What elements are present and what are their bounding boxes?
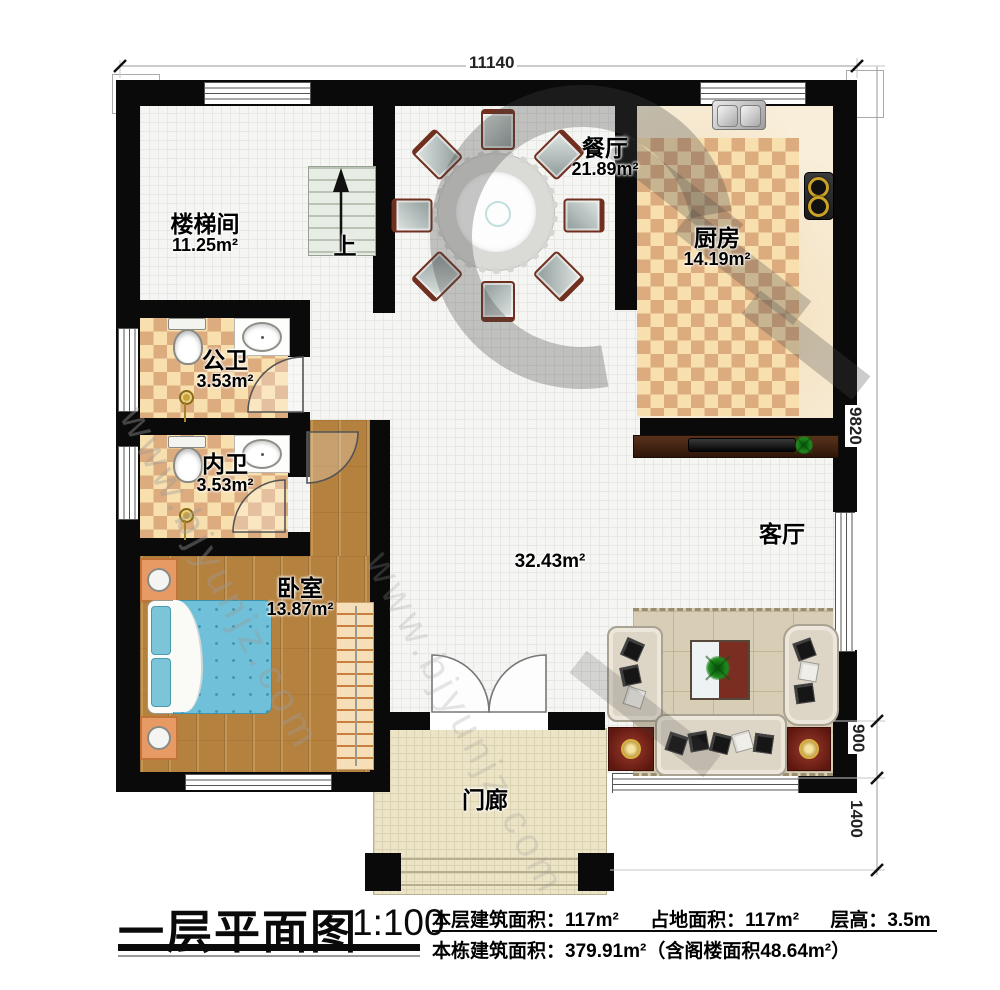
storey-height-text: 层高：3.5m bbox=[830, 910, 930, 931]
window-bedroom-bottom bbox=[185, 774, 332, 790]
stair-up-text: 上 bbox=[325, 234, 365, 258]
info-separator-line bbox=[432, 930, 937, 932]
window-living-right bbox=[835, 512, 855, 652]
bed-pillow bbox=[151, 658, 171, 707]
living-name-label: 客厅 bbox=[742, 522, 822, 546]
window-inner-bath-left bbox=[118, 446, 138, 520]
cushion bbox=[797, 660, 819, 682]
dimension-right-total: 9820 bbox=[845, 405, 865, 447]
living-area-label: 32.43m² bbox=[495, 552, 605, 572]
land-area-text: 占地面积：117m² bbox=[650, 910, 799, 931]
window-living-bottom bbox=[612, 773, 799, 793]
kitchen-name: 厨房 bbox=[672, 226, 762, 250]
sink-bowl-right bbox=[740, 105, 761, 127]
cushion bbox=[665, 732, 689, 756]
dining-chair bbox=[392, 199, 433, 233]
plan-scale: 1:100 bbox=[352, 902, 445, 944]
table-lamp bbox=[147, 726, 171, 750]
wardrobe bbox=[336, 602, 374, 770]
dining-chair bbox=[564, 199, 605, 233]
bedroom-area: 13.87m² bbox=[252, 600, 348, 619]
plan-title: 一层平面图 bbox=[118, 896, 358, 962]
tv bbox=[688, 438, 796, 452]
sink-bowl-left bbox=[717, 105, 738, 127]
dining-table bbox=[438, 154, 554, 270]
porch-step-line bbox=[398, 884, 580, 886]
kitchen-stove bbox=[804, 172, 834, 220]
armchair-left bbox=[607, 626, 663, 722]
living-name: 客厅 bbox=[742, 522, 822, 546]
inner-bath-name: 内卫 bbox=[180, 452, 270, 476]
public-bath-area: 3.53m² bbox=[180, 372, 270, 391]
cushion bbox=[731, 730, 755, 754]
table-lamp bbox=[147, 568, 171, 592]
wall-bath-right-a bbox=[288, 300, 310, 357]
kitchen-sink bbox=[712, 100, 766, 130]
floor-lamp bbox=[799, 739, 819, 759]
porch-step-line bbox=[398, 871, 580, 873]
dimension-right-900: 900 bbox=[848, 722, 868, 754]
wall-entry-right bbox=[548, 712, 605, 730]
window-stairwell-top bbox=[204, 82, 311, 104]
cushion bbox=[623, 686, 647, 710]
sofa-main bbox=[655, 714, 787, 776]
area-info-line1: 本层建筑面积：117m² 占地面积：117m² 层高：3.5m bbox=[432, 905, 957, 932]
coffee-table-plant bbox=[706, 656, 730, 680]
stove-burner bbox=[808, 177, 829, 198]
bedroom-corridor-floor bbox=[310, 420, 370, 556]
dining-chair bbox=[481, 109, 515, 150]
inner-bath-label: 内卫 3.53m² bbox=[180, 452, 270, 495]
title-underline-thick bbox=[118, 944, 420, 951]
porch-name: 门廊 bbox=[440, 788, 530, 812]
cushion bbox=[794, 683, 815, 704]
stove-burner bbox=[808, 196, 829, 217]
stair-up-label: 上 bbox=[325, 234, 365, 258]
area-info-line2: 本栋建筑面积：379.91m²（含阁楼面积48.64m²） bbox=[432, 936, 876, 963]
dimension-top-width: 11140 bbox=[466, 53, 517, 73]
cushion bbox=[687, 730, 709, 752]
cushion bbox=[753, 733, 774, 754]
nightstand-top bbox=[140, 558, 178, 602]
stairwell-area: 11.25m² bbox=[150, 236, 260, 255]
public-bath-name: 公卫 bbox=[180, 348, 270, 372]
wall-entry-left bbox=[385, 712, 430, 730]
kitchen-floor bbox=[637, 138, 799, 416]
public-bath-label: 公卫 3.53m² bbox=[180, 348, 270, 391]
cushion bbox=[619, 664, 642, 687]
window-public-bath-left bbox=[118, 328, 138, 412]
porch-column-right bbox=[578, 853, 614, 891]
public-bath-floor-drain bbox=[179, 390, 194, 405]
floor-area-text: 本层建筑面积：117m² bbox=[432, 910, 619, 931]
entry-door-opening bbox=[430, 712, 548, 730]
side-mat-left bbox=[608, 727, 654, 771]
side-mat-right bbox=[787, 727, 831, 771]
dining-table-center bbox=[485, 201, 511, 227]
porch-step-line bbox=[398, 858, 580, 860]
inner-bath-floor-drain bbox=[179, 508, 194, 523]
dining-name: 餐厅 bbox=[560, 136, 650, 160]
nightstand-bottom bbox=[140, 716, 178, 760]
kitchen-area: 14.19m² bbox=[672, 250, 762, 269]
dining-area: 21.89m² bbox=[560, 160, 650, 179]
cushion bbox=[709, 732, 732, 755]
wall-below-inner-bath bbox=[116, 538, 310, 556]
cushion bbox=[792, 637, 816, 661]
total-area-text: 本栋建筑面积：379.91m²（含阁楼面积48.64m²） bbox=[432, 941, 850, 962]
inner-bath-area: 3.53m² bbox=[180, 476, 270, 495]
wall-bottom-right-corner bbox=[797, 773, 857, 793]
stairwell-label: 楼梯间 11.25m² bbox=[150, 212, 260, 255]
chaise-right bbox=[783, 624, 839, 726]
wall-left bbox=[116, 80, 140, 792]
floor-lamp bbox=[621, 739, 641, 759]
bed-pillow bbox=[151, 606, 171, 655]
stairwell-name: 楼梯间 bbox=[150, 212, 260, 236]
wall-kitchen-living bbox=[640, 418, 837, 435]
porch-column-left bbox=[365, 853, 401, 891]
porch-label: 门廊 bbox=[440, 788, 530, 812]
bedroom-label: 卧室 13.87m² bbox=[252, 576, 348, 619]
bedroom-name: 卧室 bbox=[252, 576, 348, 600]
floor-plan-page: { "plan": { "dimensions": { "top_width":… bbox=[0, 0, 1000, 990]
wall-bath-top bbox=[116, 300, 310, 318]
tv-cabinet-plant bbox=[795, 436, 813, 454]
dining-label: 餐厅 21.89m² bbox=[560, 136, 650, 179]
living-area: 32.43m² bbox=[495, 552, 605, 572]
kitchen-label: 厨房 14.19m² bbox=[672, 226, 762, 269]
dining-chair bbox=[481, 281, 515, 322]
title-underline-thin bbox=[118, 955, 420, 957]
cushion bbox=[620, 637, 645, 662]
wall-between-baths bbox=[116, 418, 310, 435]
dimension-right-1400: 1400 bbox=[846, 798, 866, 840]
